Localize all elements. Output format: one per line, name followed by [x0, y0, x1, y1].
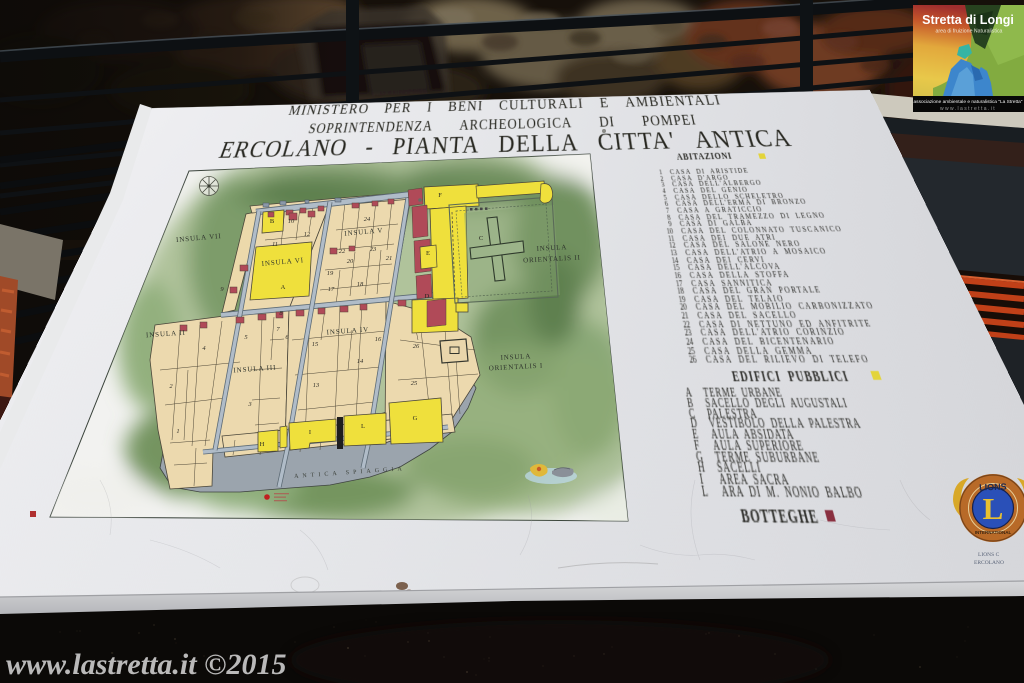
svg-text:E: E [426, 250, 430, 257]
svg-text:www.lastretta.it: www.lastretta.it [940, 106, 996, 112]
svg-text:15: 15 [312, 341, 319, 348]
svg-text:11: 11 [272, 241, 278, 248]
svg-text:19: 19 [327, 270, 334, 277]
svg-text:1: 1 [176, 428, 179, 435]
svg-text:A: A [281, 284, 286, 291]
svg-text:10: 10 [288, 218, 295, 225]
svg-text:L: L [361, 423, 365, 430]
svg-text:area di fruizione Naturalistic: area di fruizione Naturalistica [936, 29, 1003, 35]
svg-text:ERCOLANO: ERCOLANO [974, 560, 1004, 566]
svg-text:17: 17 [328, 286, 335, 293]
svg-text:20: 20 [347, 258, 354, 265]
svg-text:B: B [270, 218, 275, 225]
svg-text:26: 26 [413, 343, 420, 350]
svg-text:I: I [309, 429, 311, 436]
svg-text:24: 24 [364, 216, 371, 223]
svg-text:associazione ambientale e natu: associazione ambientale e naturalistica … [914, 99, 1023, 105]
svg-text:LIONS C: LIONS C [978, 552, 1000, 558]
svg-text:INSULA: INSULA [500, 352, 531, 362]
svg-text:D: D [425, 293, 430, 300]
svg-text:LIONS: LIONS [979, 482, 1007, 493]
svg-text:F: F [438, 192, 442, 199]
svg-text:23: 23 [370, 246, 377, 253]
svg-text:Stretta di Longi: Stretta di Longi [922, 13, 1014, 27]
svg-text:12: 12 [304, 231, 311, 238]
svg-text:H: H [260, 441, 265, 448]
svg-text:16: 16 [375, 336, 382, 343]
svg-text:INSULA: INSULA [536, 243, 567, 253]
svg-text:C: C [479, 235, 483, 242]
svg-text:L: L [983, 491, 1004, 526]
svg-text:13: 13 [313, 382, 320, 389]
svg-text:14: 14 [357, 358, 364, 365]
svg-text:21: 21 [386, 255, 393, 262]
svg-text:22: 22 [339, 248, 346, 255]
svg-text:25: 25 [411, 380, 418, 387]
svg-text:G: G [413, 415, 418, 422]
svg-text:18: 18 [357, 281, 364, 288]
svg-text:INTERNATIONAL: INTERNATIONAL [975, 530, 1012, 535]
